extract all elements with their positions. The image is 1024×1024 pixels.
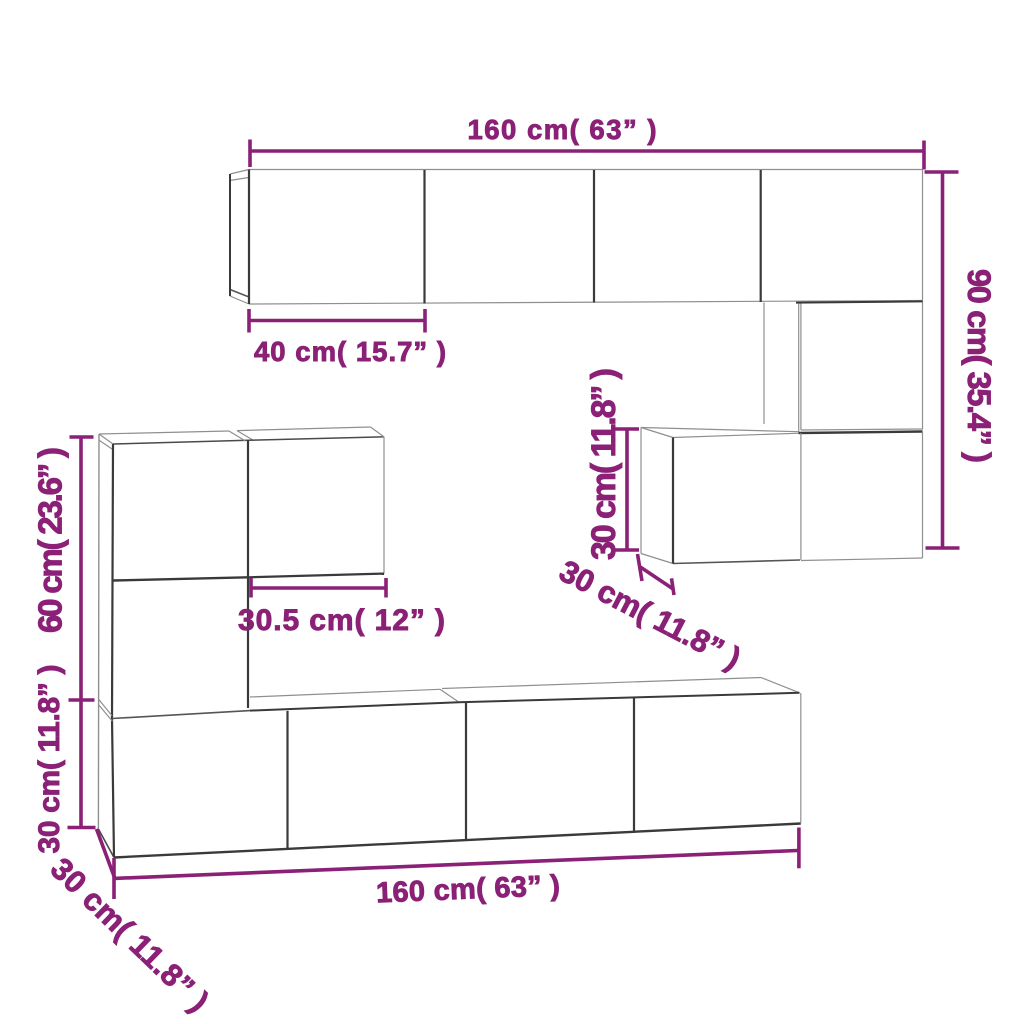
svg-text:60 cm( 23.6” ): 60 cm( 23.6” ) <box>32 447 69 633</box>
svg-text:90 cm( 35.4” ): 90 cm( 35.4” ) <box>961 269 997 463</box>
svg-text:30.5 cm( 12” ): 30.5 cm( 12” ) <box>238 604 445 637</box>
svg-text:30 cm( 11.8” ): 30 cm( 11.8” ) <box>33 665 66 854</box>
svg-text:30 cm( 11.8” ): 30 cm( 11.8” ) <box>585 368 623 560</box>
svg-text:40 cm( 15.7” ): 40 cm( 15.7” ) <box>254 336 446 367</box>
svg-text:160 cm( 63” ): 160 cm( 63” ) <box>468 114 657 145</box>
